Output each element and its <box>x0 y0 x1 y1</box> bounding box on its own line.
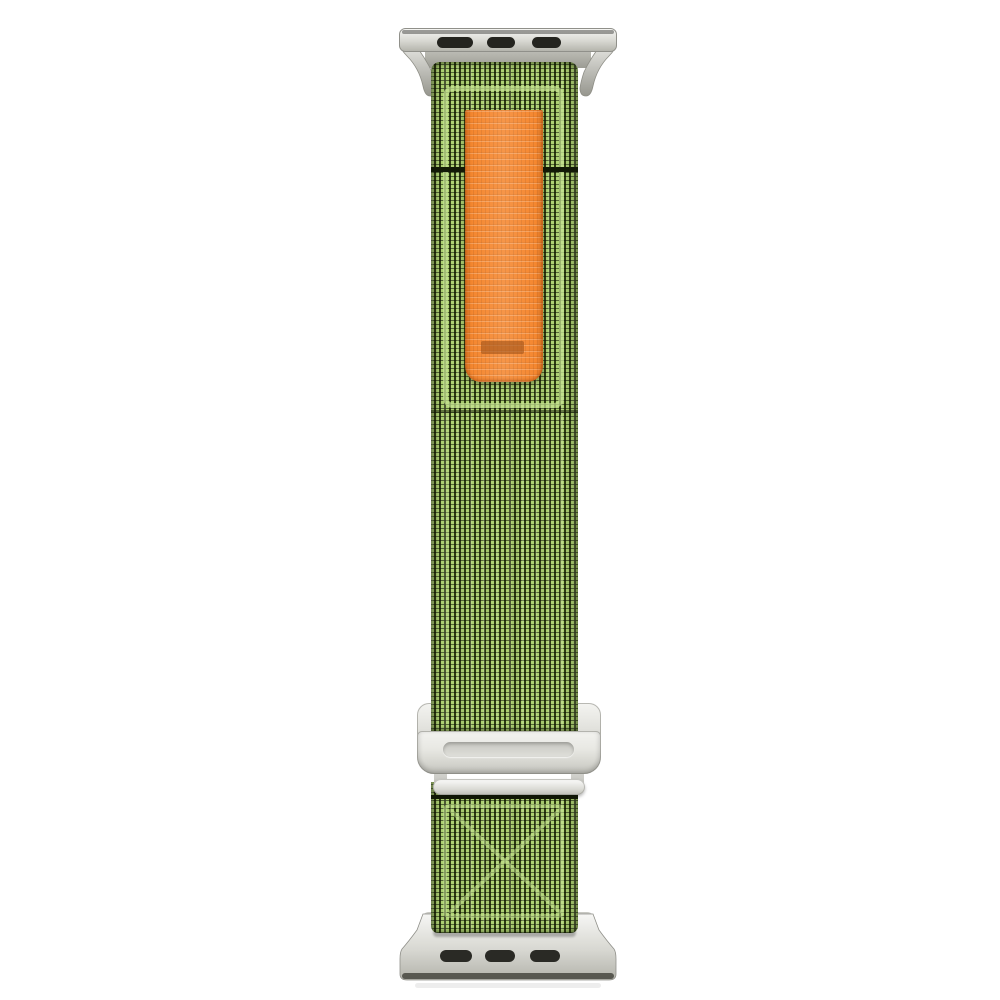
adapter-ground-shadow <box>415 983 601 988</box>
adapter-slot <box>437 37 473 48</box>
adapter-slot <box>530 950 560 962</box>
edge-stitch-line <box>560 415 563 724</box>
buckle-body <box>417 731 601 774</box>
buckle-groove <box>443 742 574 757</box>
adapter-slot <box>440 950 472 962</box>
adapter-slot <box>487 37 515 48</box>
mid-seam <box>431 410 578 413</box>
adapter-bottom-edge <box>402 973 614 979</box>
orange-pull-tab <box>465 110 543 382</box>
tab-label-patch <box>481 341 524 354</box>
nylon-band <box>431 62 578 933</box>
adapter-slot <box>532 37 561 48</box>
product-photo-watch-band <box>0 0 1000 1000</box>
edge-stitch-line <box>446 415 449 724</box>
buckle-hook-bar <box>433 779 585 795</box>
buckle-seam <box>431 795 578 799</box>
adapter-slot <box>485 950 515 962</box>
adapter-bar-top-edge <box>402 30 614 34</box>
